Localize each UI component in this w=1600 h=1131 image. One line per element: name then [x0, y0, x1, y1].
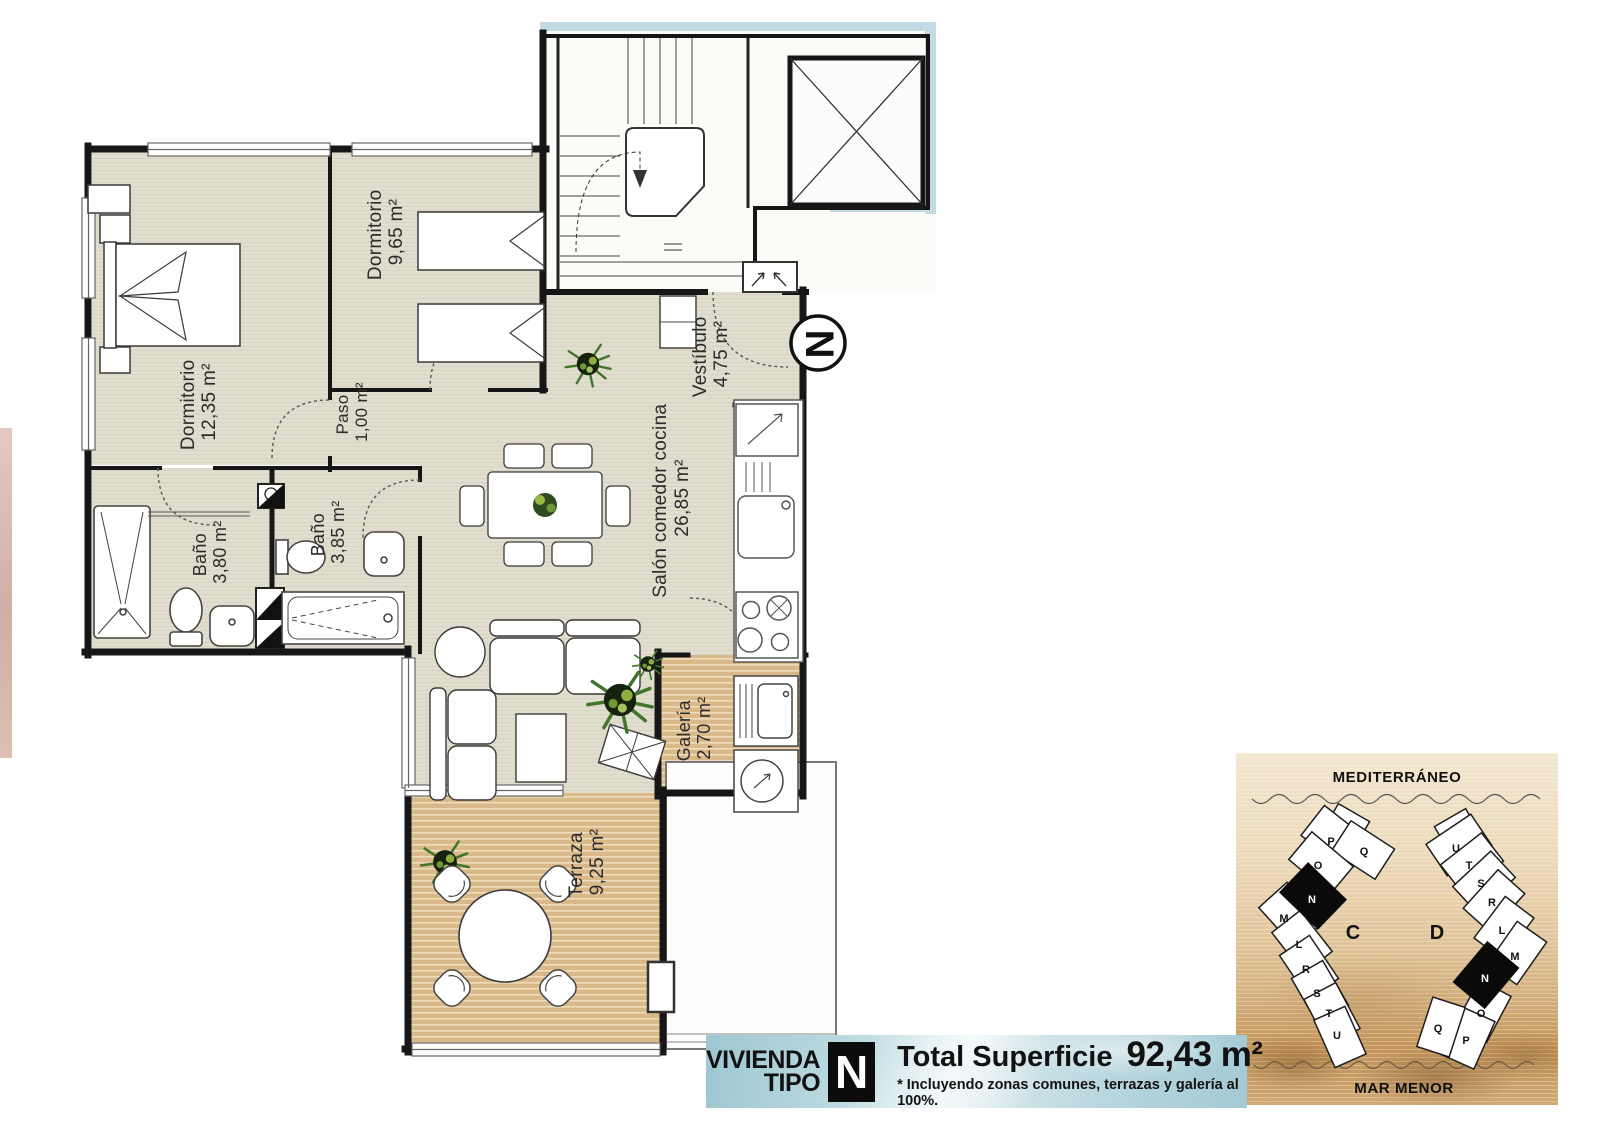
svg-text:P: P: [1462, 1035, 1469, 1047]
svg-text:M: M: [1279, 913, 1288, 925]
svg-text:O: O: [1477, 1008, 1486, 1020]
sea-label-mediterraneo: MEDITERRÁNEO: [1333, 769, 1462, 786]
banner-title-line2: TIPO: [706, 1072, 820, 1095]
label-vestibulo: Vestíbulo 4,75 m²: [690, 311, 732, 397]
type-letter-badge: N: [828, 1042, 875, 1102]
svg-text:U: U: [1333, 1030, 1341, 1042]
floorplan-page: N Dormitorio 12,35 m² Dormitorio 9,65 m²…: [0, 0, 1600, 1131]
waves-top: [1252, 795, 1540, 804]
svg-text:T: T: [1326, 1008, 1333, 1020]
label-paso: Paso 1,00 m²: [333, 382, 371, 442]
total-surface-value: 92,43 m²: [1126, 1035, 1262, 1075]
kitchen-counter: [734, 400, 803, 662]
elevator-shaft: [790, 58, 923, 205]
north-letter: N: [797, 330, 841, 359]
svg-text:N: N: [1481, 973, 1489, 985]
type-banner: VIVIENDA TIPO N Total Superficie 92,43 m…: [706, 1035, 1247, 1108]
svg-text:P: P: [1327, 836, 1334, 848]
block-d-label: D: [1430, 922, 1444, 944]
label-bano-2: Baño 3,85 m²: [308, 500, 348, 563]
svg-text:T: T: [1466, 860, 1473, 872]
svg-text:S: S: [1477, 878, 1484, 890]
label-terraza: Terraza 9,25 m²: [566, 826, 608, 897]
svg-text:U: U: [1452, 843, 1460, 855]
svg-text:M: M: [1510, 951, 1519, 963]
galeria-fixtures: [734, 676, 798, 812]
svg-text:R: R: [1488, 897, 1496, 909]
svg-text:Q: Q: [1360, 846, 1369, 858]
svg-text:R: R: [1302, 964, 1310, 976]
north-compass: N: [791, 316, 845, 370]
total-surface-label: Total Superficie: [897, 1041, 1112, 1074]
page-edge-artifact: [0, 428, 12, 758]
svg-text:L: L: [1296, 939, 1303, 951]
svg-text:N: N: [1308, 894, 1316, 906]
svg-text:S: S: [1313, 988, 1320, 1000]
label-galeria: Galería 2,70 m²: [674, 695, 714, 761]
label-dormitorio-1: Dormitorio 12,35 m²: [178, 354, 220, 450]
svg-text:O: O: [1314, 860, 1323, 872]
site-location-map: MEDITERRÁNEO: [1236, 753, 1558, 1105]
banner-title: VIVIENDA TIPO: [706, 1049, 828, 1095]
label-bano-1: Baño 3,80 m²: [190, 520, 230, 583]
block-c-label: C: [1346, 922, 1360, 944]
svg-text:L: L: [1499, 925, 1506, 937]
waves-bottom: [1254, 1062, 1534, 1069]
surface-footnote: * Incluyendo zonas comunes, terrazas y g…: [897, 1077, 1262, 1109]
svg-text:Q: Q: [1434, 1023, 1443, 1035]
banner-surface: Total Superficie 92,43 m² * Incluyendo z…: [897, 1035, 1262, 1109]
sea-label-mar-menor: MAR MENOR: [1354, 1080, 1454, 1097]
